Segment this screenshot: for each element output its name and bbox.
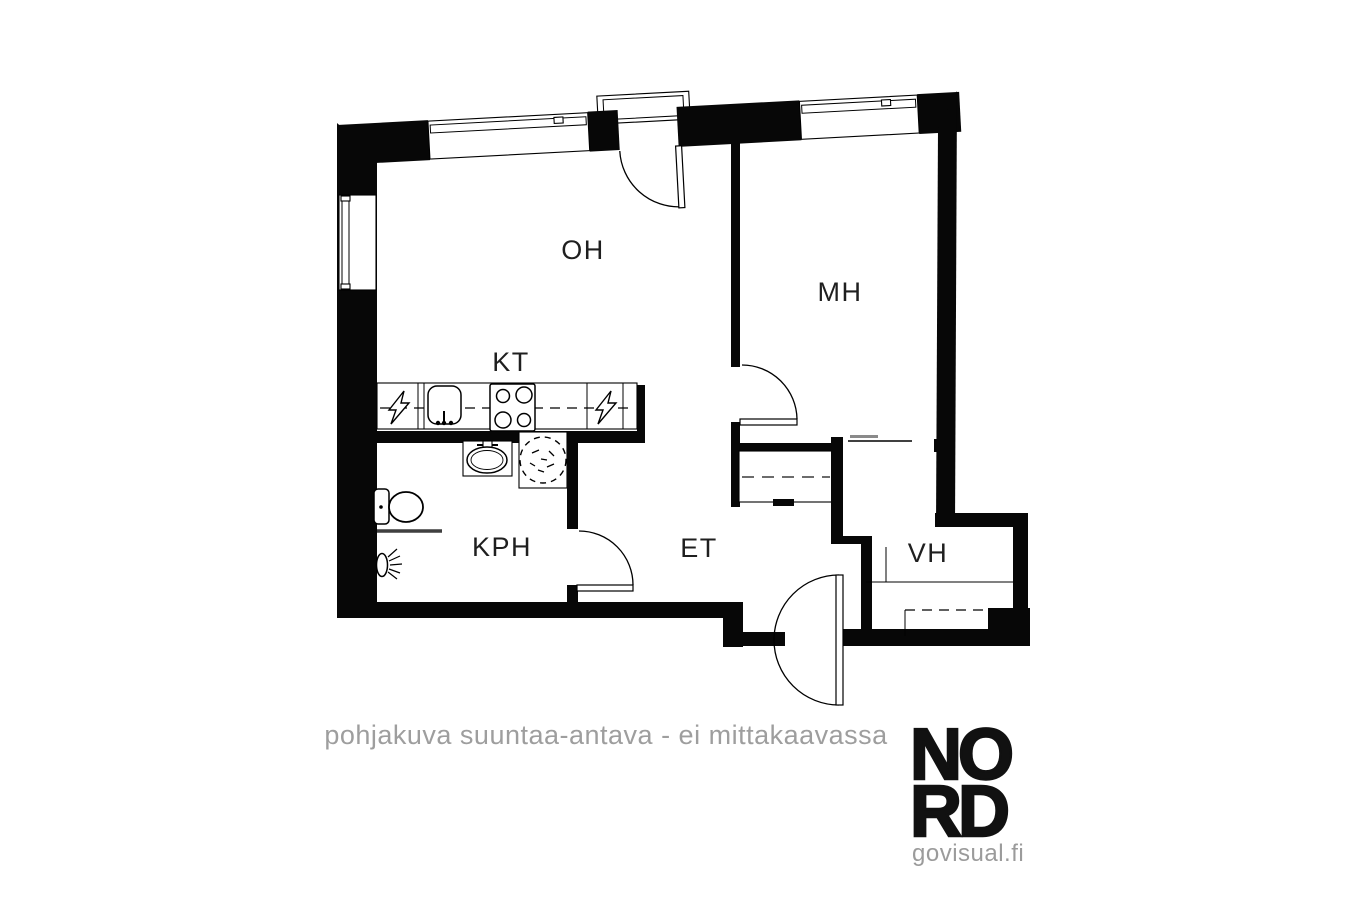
wall-kph-et-upper: [567, 443, 578, 529]
room-label-oh: OH: [561, 235, 605, 265]
wall-mh-closet: [738, 443, 838, 451]
wall-bottom-kph: [337, 602, 743, 618]
floor-plan: OH KT MH KPH ET VH pohjakuva suuntaa-ant…: [0, 0, 1366, 911]
room-label-kph: KPH: [472, 532, 532, 562]
wall-et-vh-lower: [861, 540, 872, 636]
wall-oh-mh-upper: [731, 140, 740, 367]
wall-bottom-entry-left: [743, 632, 785, 646]
wall-right-upper: [936, 91, 957, 527]
logo-website: govisual.fi: [912, 840, 1024, 867]
room-label-mh: MH: [818, 277, 863, 307]
kitchen-counter: [377, 383, 637, 431]
balcony-door-icon: [620, 146, 685, 211]
wall-right-lower: [1013, 527, 1028, 646]
shower-icon: [377, 549, 403, 579]
toilet-icon: [374, 489, 423, 524]
wall-right-jut: [935, 513, 1028, 527]
oh-window-icon: [428, 113, 590, 159]
disclaimer-text: pohjakuva suuntaa-antava - ei mittakaava…: [324, 720, 888, 750]
vh-sliding-door-icon: [848, 437, 947, 453]
mh-window-icon: [799, 95, 919, 139]
room-label-et: ET: [680, 533, 718, 563]
kph-door-icon: [577, 531, 633, 591]
wall-kph-et-lower: [567, 585, 578, 602]
room-label-kt: KT: [492, 347, 530, 377]
page: { "plan": { "rooms": { "oh": {"label": "…: [0, 0, 1366, 911]
wall-bottom-step: [723, 602, 743, 647]
wall-top-seg-3: [677, 100, 802, 146]
left-window-icon: [339, 195, 376, 290]
wall-top-seg-2: [588, 110, 620, 152]
nord-logo: NO RD govisual.fi: [910, 715, 1024, 867]
washing-machine-icon: [519, 432, 567, 488]
bathroom-basin-icon: [463, 441, 512, 476]
room-label-vh: VH: [908, 538, 949, 568]
top-wall-group: [336, 77, 964, 226]
wall-kt-et-stub: [637, 385, 645, 431]
kitchen-sink-icon: [428, 386, 461, 425]
stove-icon: [490, 384, 535, 431]
wall-et-vh-upper: [831, 437, 843, 542]
mh-door-icon: [740, 365, 797, 425]
et-wardrobe-icon: [739, 451, 833, 506]
